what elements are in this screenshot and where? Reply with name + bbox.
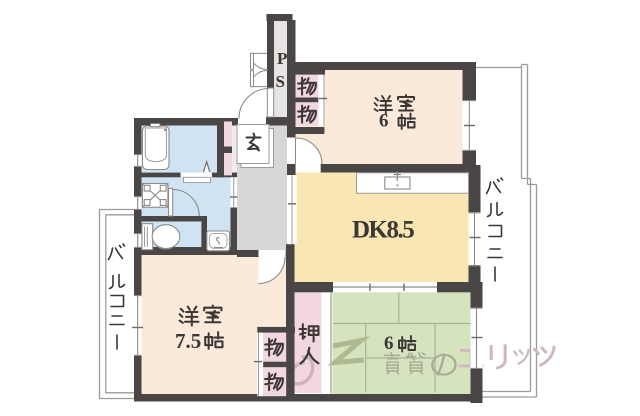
svg-text:DK8.5: DK8.5 <box>352 217 414 244</box>
svg-text:7.5: 7.5 <box>175 329 201 353</box>
svg-text:S: S <box>276 72 285 91</box>
svg-text:6: 6 <box>384 333 394 354</box>
svg-text:P: P <box>277 49 287 68</box>
svg-text:6: 6 <box>379 111 389 132</box>
